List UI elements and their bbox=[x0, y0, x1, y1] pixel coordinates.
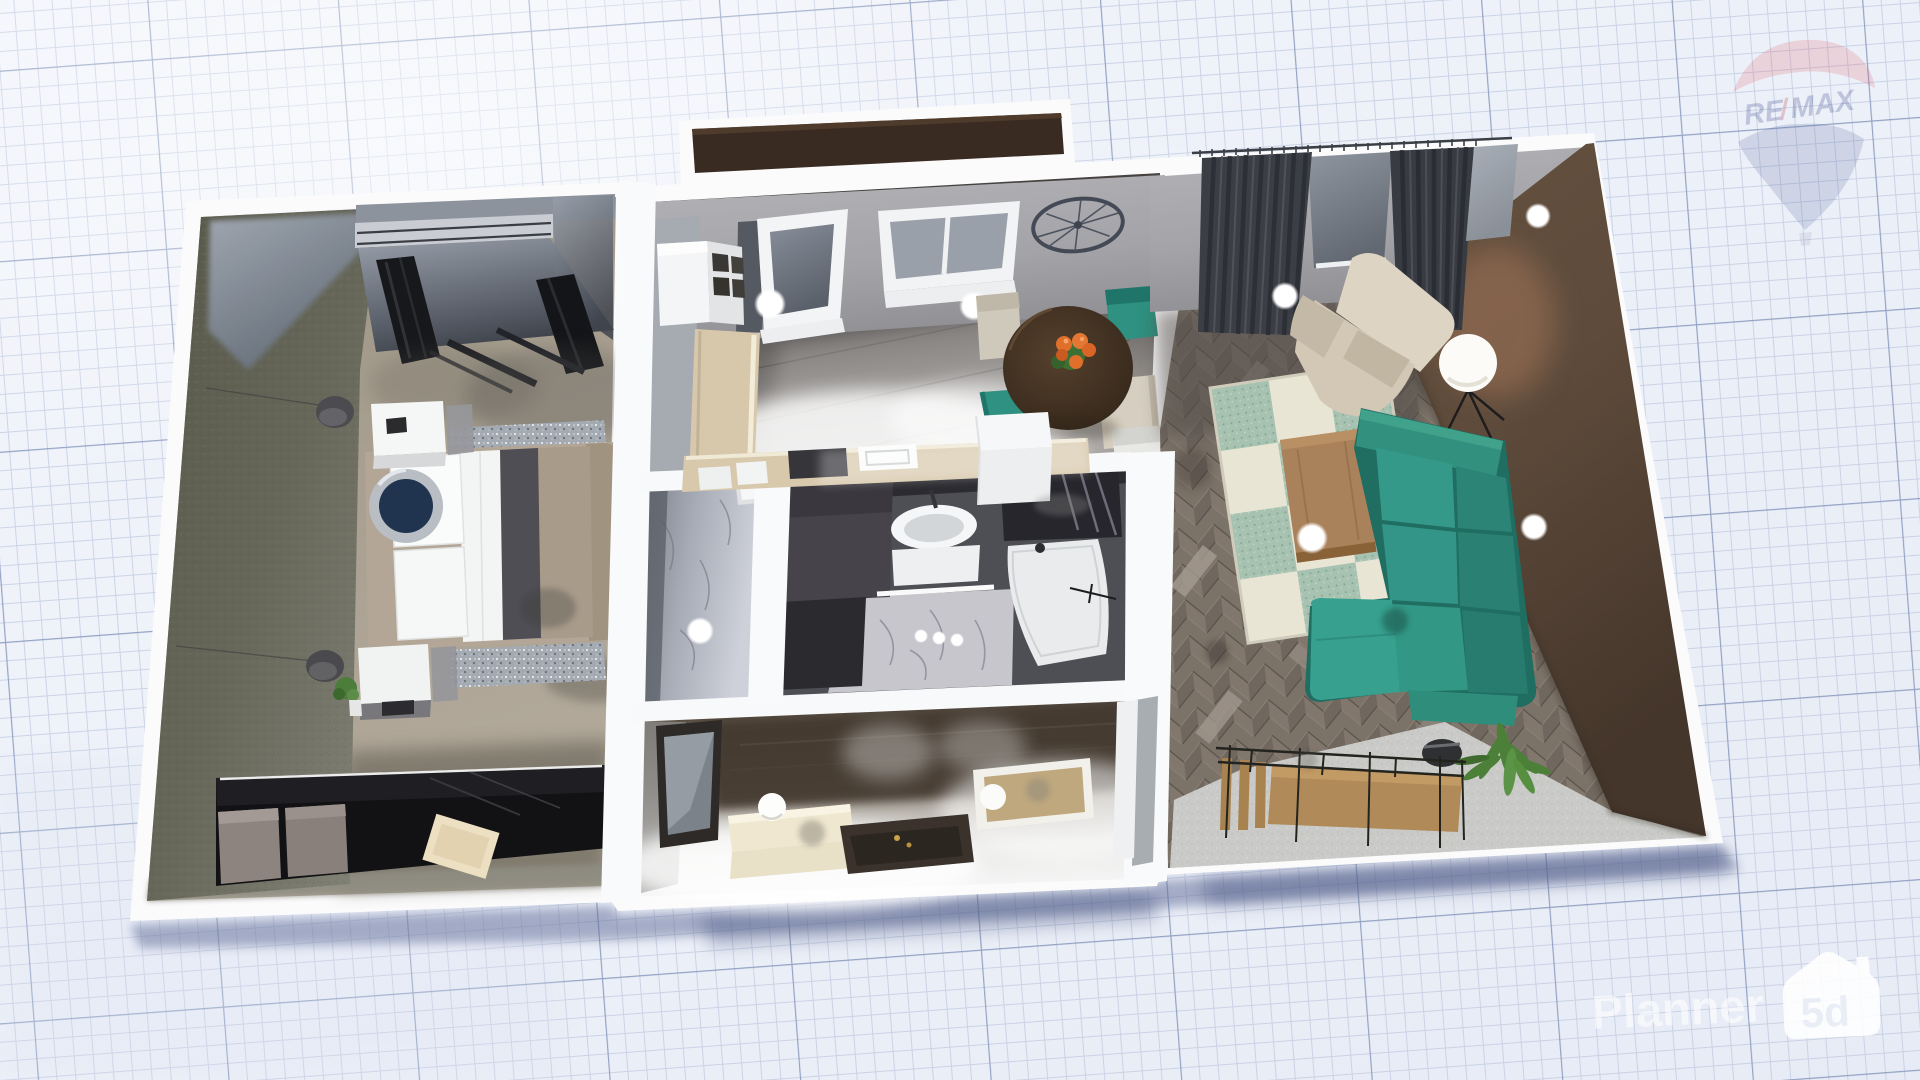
svg-text:5d: 5d bbox=[1800, 988, 1851, 1037]
svg-text:Planner: Planner bbox=[1590, 978, 1765, 1038]
